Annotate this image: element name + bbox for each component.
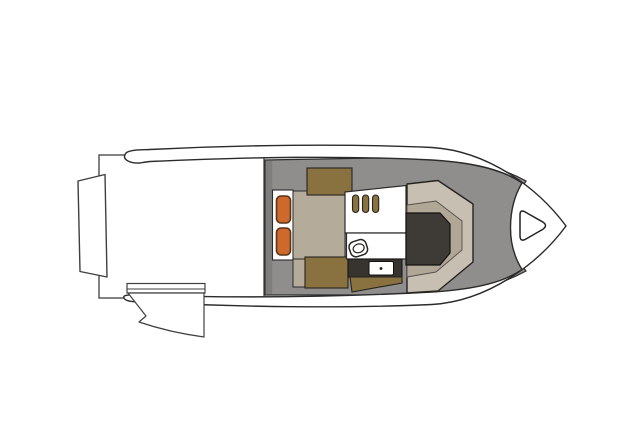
grill-grate-2 — [363, 195, 369, 213]
motor-bracket — [127, 284, 205, 294]
stove-knob — [380, 267, 383, 270]
stern-equipment — [78, 155, 264, 298]
boat-floorplan — [0, 0, 637, 425]
cockpit-table-port — [307, 168, 352, 195]
bench-cushion-top — [277, 196, 291, 223]
swim-platform — [99, 155, 264, 298]
bench-cushion-bottom — [277, 228, 291, 255]
galley-grill-grates — [353, 195, 379, 213]
outboard-motor — [127, 284, 205, 338]
motor-body — [128, 293, 204, 337]
floorplan-svg — [0, 0, 637, 425]
lounge-seat — [293, 191, 345, 259]
cockpit-table-starboard — [305, 257, 348, 288]
grill-grate-3 — [373, 195, 379, 213]
console-cushion — [406, 213, 450, 265]
grill-grate-1 — [353, 195, 359, 213]
transom-bulkhead-shadow — [266, 161, 273, 294]
engine-bracket — [78, 175, 107, 278]
